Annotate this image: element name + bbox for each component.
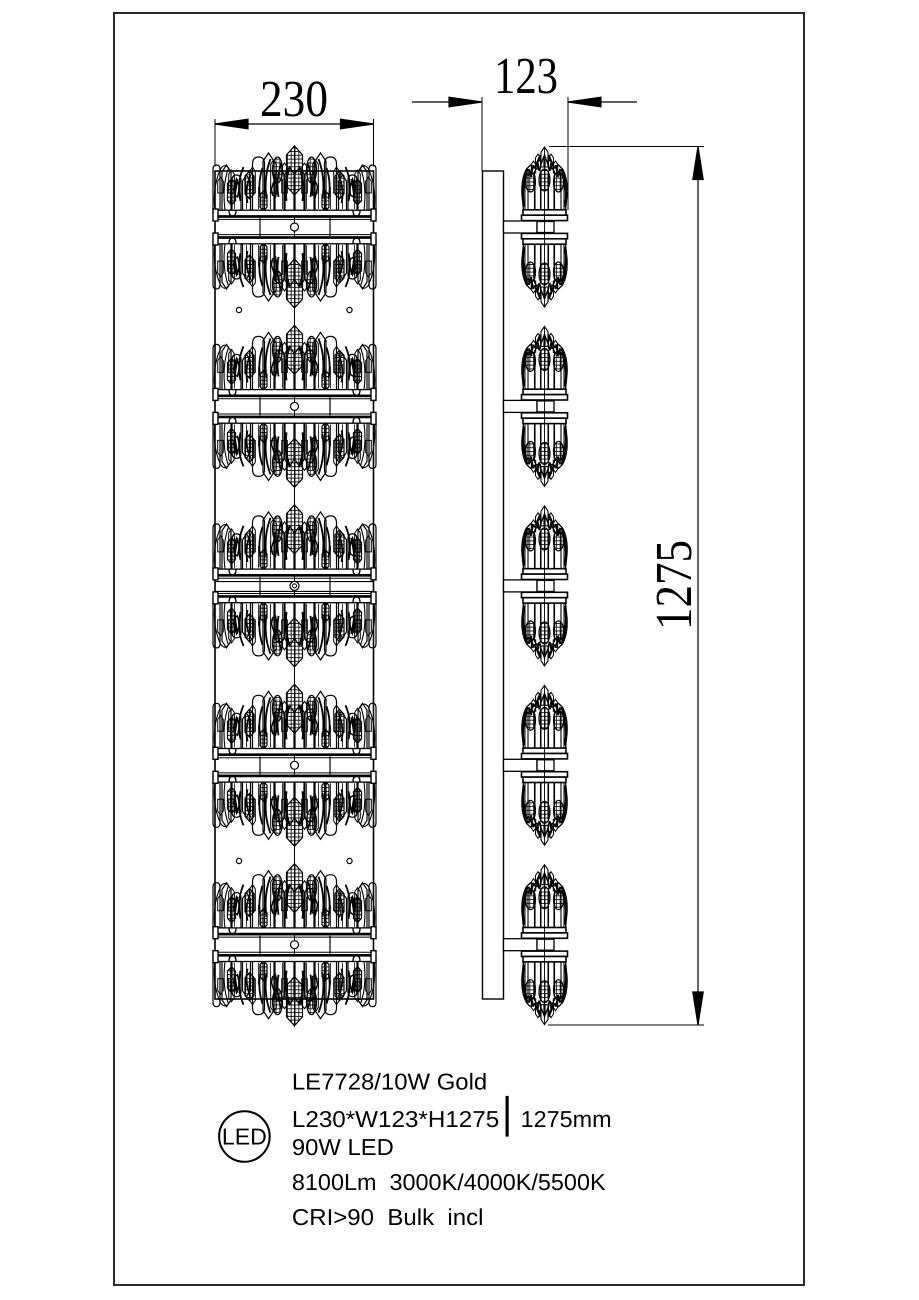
svg-text:230: 230: [260, 71, 328, 128]
svg-text:CRI>90 Bulk incl: CRI>90 Bulk incl: [292, 1204, 484, 1230]
svg-text:1275mm: 1275mm: [521, 1106, 612, 1132]
svg-text:1275: 1275: [646, 540, 703, 630]
svg-text:8100Lm 3000K/4000K/5500K: 8100Lm 3000K/4000K/5500K: [292, 1169, 606, 1195]
svg-text:L230*W123*H1275: L230*W123*H1275: [292, 1106, 499, 1132]
svg-text:LED: LED: [222, 1123, 267, 1149]
svg-text:LE7728/10W Gold: LE7728/10W Gold: [292, 1069, 487, 1095]
svg-text:123: 123: [494, 48, 558, 105]
svg-text:90W LED: 90W LED: [292, 1134, 394, 1160]
